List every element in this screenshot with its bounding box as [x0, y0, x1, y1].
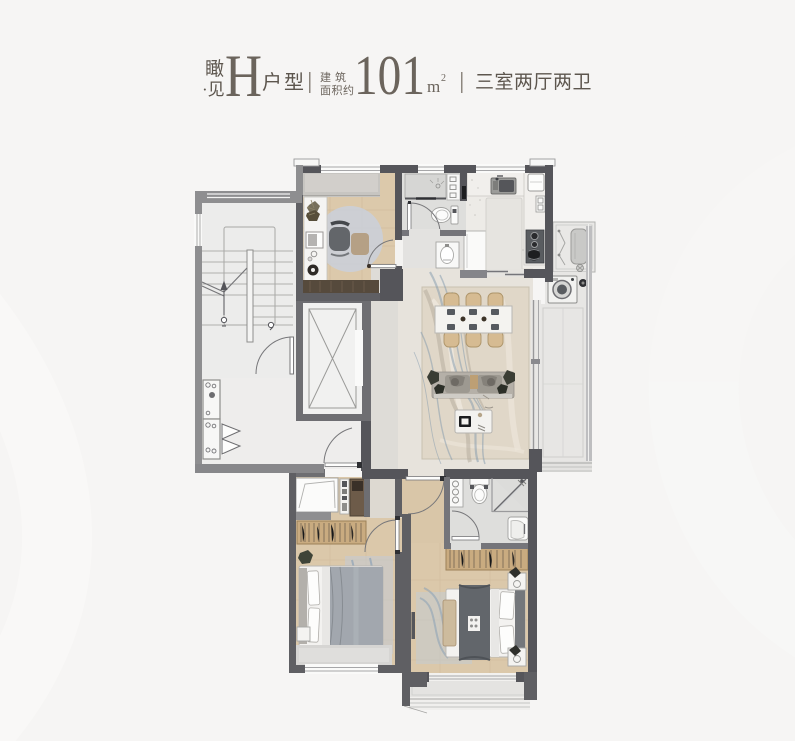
svg-text:m: m	[427, 77, 440, 96]
svg-text:建筑: 建筑	[320, 70, 350, 84]
svg-text:面积约: 面积约	[320, 84, 355, 97]
svg-text:瞰: 瞰	[205, 58, 224, 80]
svg-text:·见: ·见	[202, 80, 225, 99]
svg-text:2: 2	[441, 73, 446, 84]
svg-text:三室两厅两卫: 三室两厅两卫	[475, 71, 592, 93]
svg-text:101: 101	[354, 45, 425, 107]
svg-text:户型: 户型	[262, 71, 306, 94]
svg-text:H: H	[225, 43, 262, 109]
